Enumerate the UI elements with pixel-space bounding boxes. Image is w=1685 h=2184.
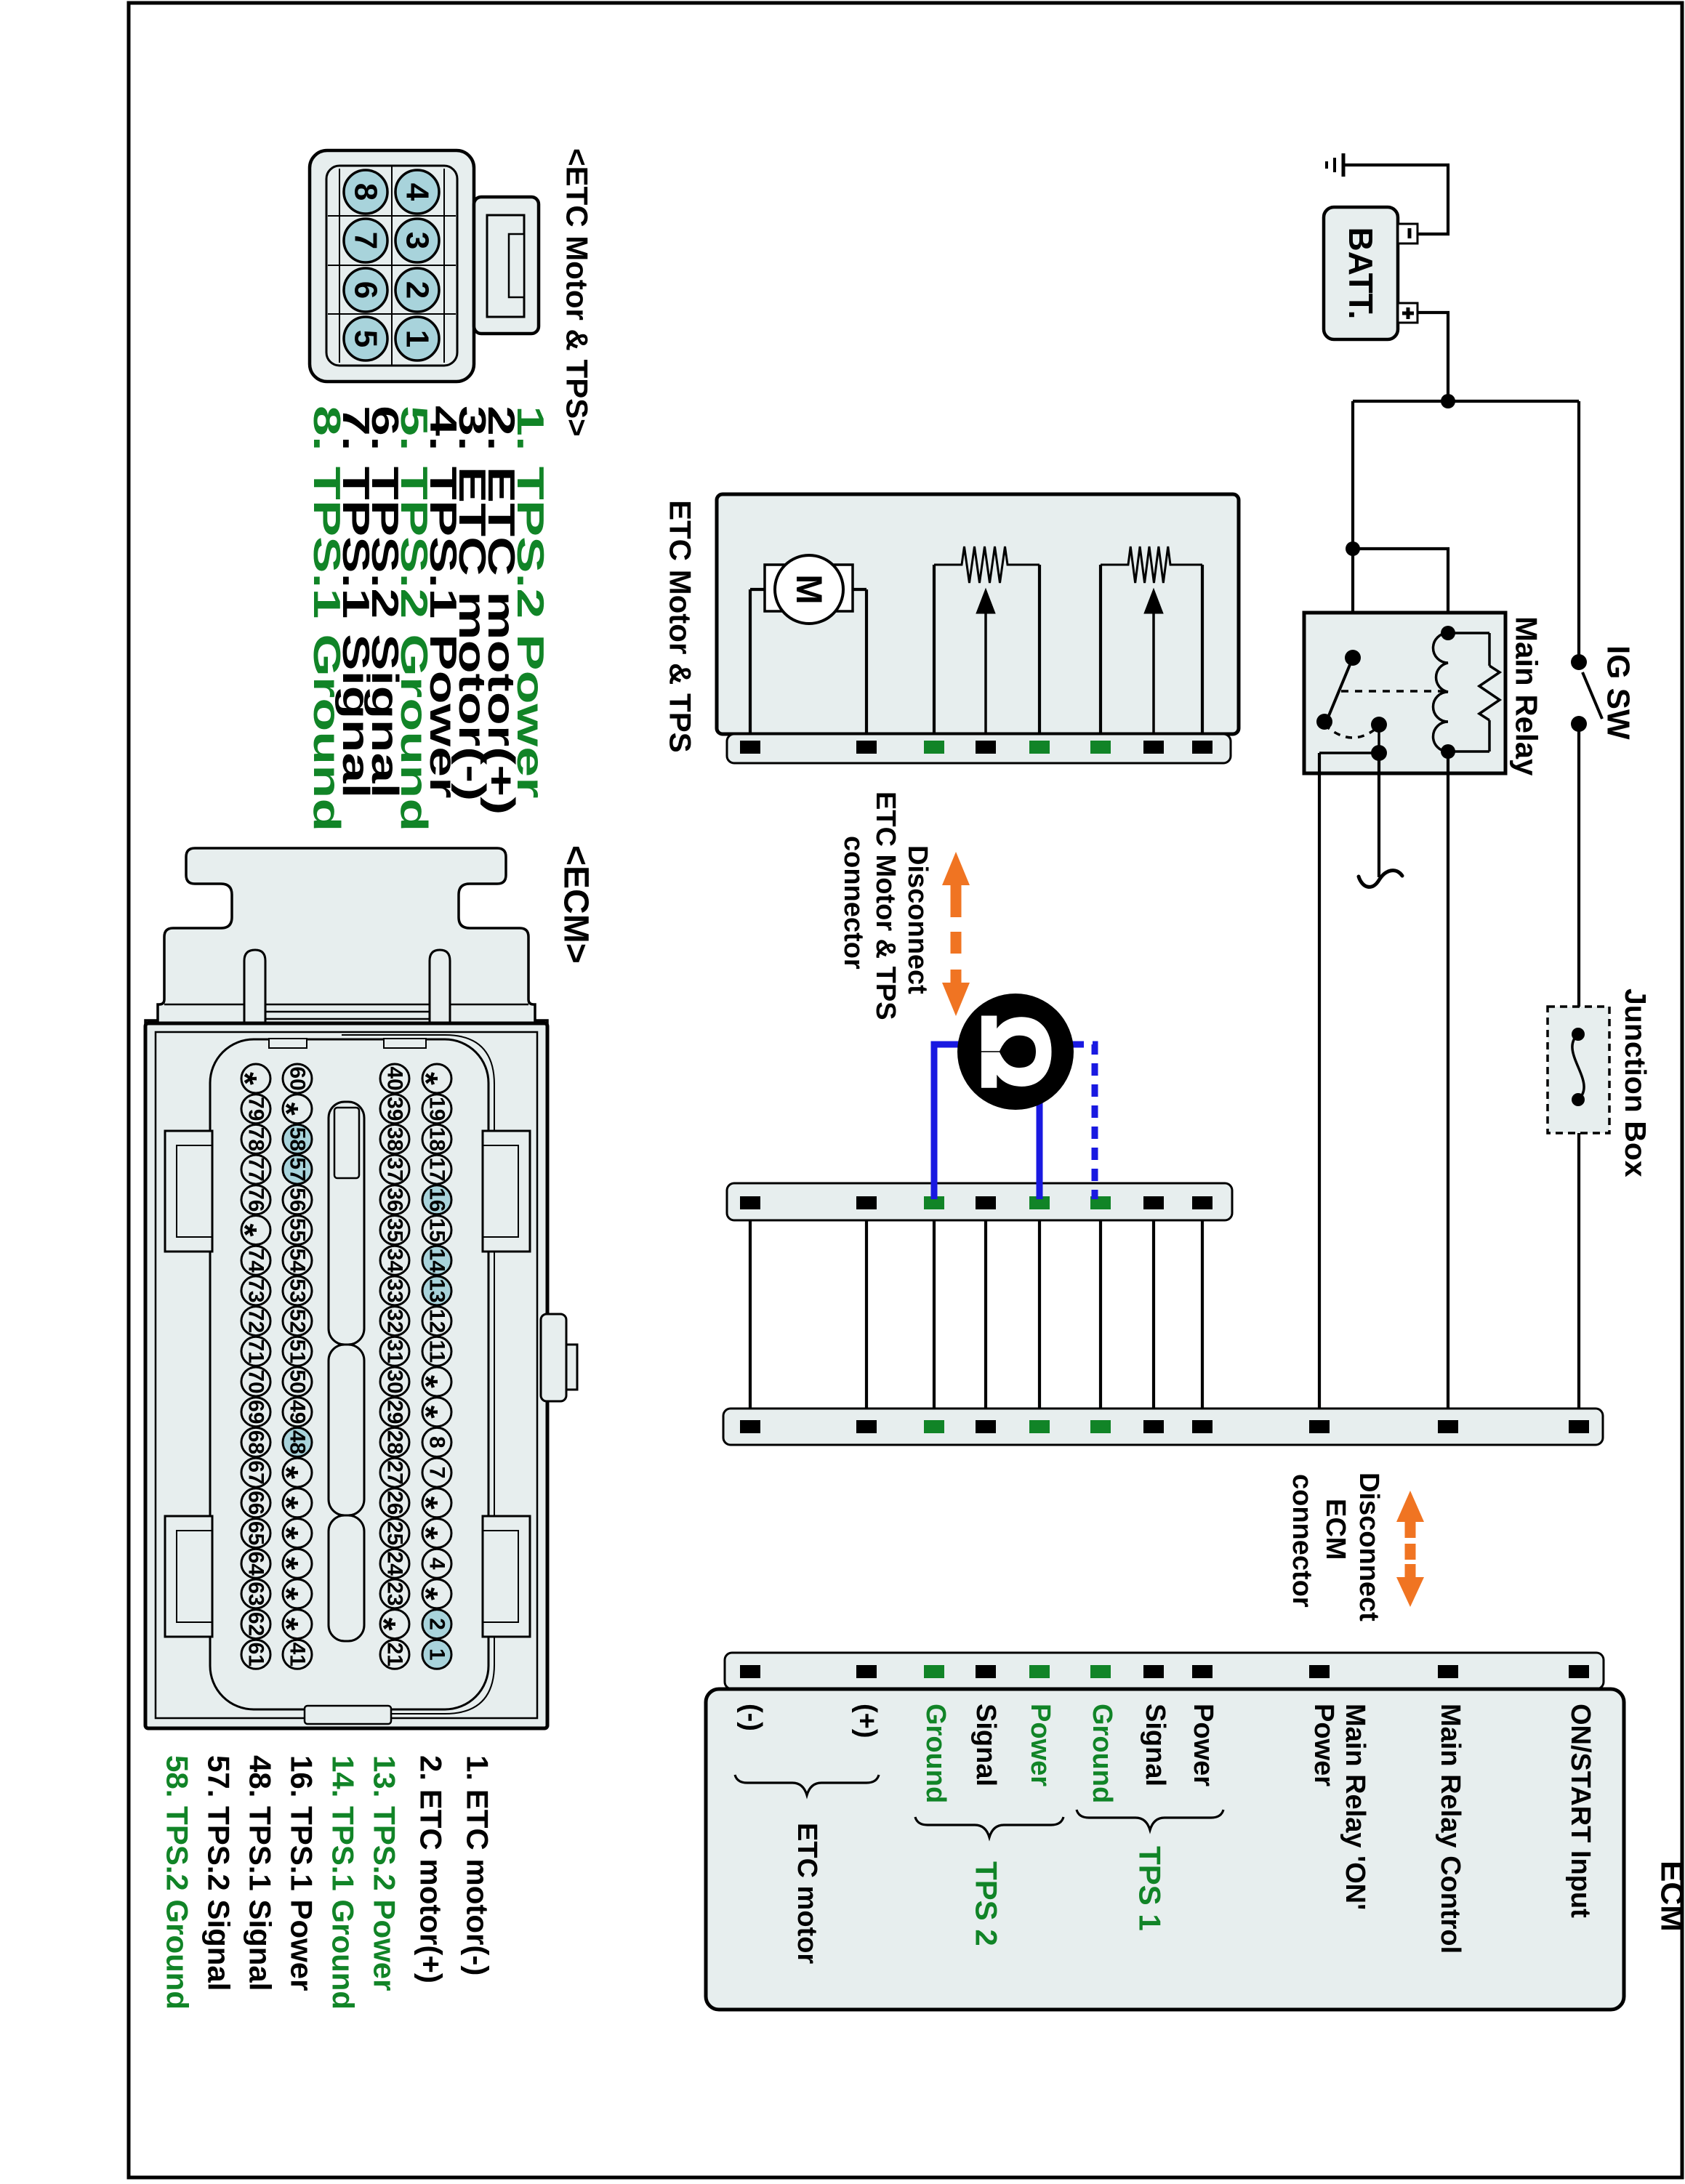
svg-text:2: 2	[400, 281, 435, 299]
svg-text:<ETC Motor & TPS>: <ETC Motor & TPS>	[560, 148, 595, 437]
svg-text:M: M	[789, 574, 829, 605]
svg-text:73: 73	[244, 1278, 268, 1302]
svg-text:26: 26	[383, 1491, 407, 1515]
svg-text:40: 40	[383, 1066, 407, 1090]
svg-text:ECM: ECM	[1654, 1861, 1685, 1932]
svg-text:70: 70	[244, 1369, 268, 1393]
svg-text:12: 12	[425, 1309, 449, 1333]
svg-text:Ground: Ground	[920, 1704, 951, 1803]
svg-text:8: 8	[425, 1436, 449, 1448]
svg-text:*: *	[226, 1224, 264, 1237]
svg-text:Main Relay Control: Main Relay Control	[1435, 1704, 1465, 1954]
svg-text:48: 48	[286, 1430, 310, 1454]
svg-text:*: *	[268, 1527, 305, 1540]
svg-text:14: 14	[425, 1249, 449, 1273]
svg-text:76: 76	[244, 1188, 268, 1212]
svg-text:*: *	[407, 1406, 445, 1419]
svg-text:*: *	[407, 1072, 445, 1085]
svg-text:67: 67	[244, 1460, 268, 1484]
svg-text:*: *	[268, 1618, 305, 1631]
svg-text:39: 39	[383, 1097, 407, 1121]
svg-text:8: 8	[348, 183, 384, 201]
svg-text:BATT.: BATT.	[1342, 227, 1380, 320]
svg-text:*: *	[407, 1527, 445, 1540]
svg-text:56: 56	[286, 1188, 310, 1212]
svg-text:19: 19	[425, 1097, 449, 1121]
svg-text:*: *	[226, 1072, 264, 1085]
svg-text:ON/START Input: ON/START Input	[1565, 1704, 1596, 1918]
svg-text:71: 71	[244, 1339, 268, 1363]
svg-text:30: 30	[383, 1369, 407, 1393]
svg-text:Disconnect: Disconnect	[902, 845, 933, 994]
svg-text:4: 4	[425, 1558, 449, 1570]
svg-text:37: 37	[383, 1157, 407, 1181]
svg-text:24: 24	[383, 1552, 407, 1576]
svg-text:Ω: Ω	[964, 1015, 1068, 1089]
svg-text:48. TPS.1 Signal: 48. TPS.1 Signal	[244, 1755, 278, 1991]
svg-text:65: 65	[244, 1521, 268, 1545]
svg-text:31: 31	[383, 1339, 407, 1363]
svg-text:Signal: Signal	[1140, 1704, 1170, 1786]
svg-text:50: 50	[286, 1369, 310, 1393]
svg-text:Power: Power	[1025, 1704, 1055, 1786]
svg-text:*: *	[407, 1375, 445, 1388]
svg-text:61: 61	[244, 1643, 268, 1667]
svg-text:54: 54	[286, 1249, 310, 1273]
svg-text:34: 34	[383, 1249, 407, 1273]
svg-text:29: 29	[383, 1400, 407, 1424]
svg-text:63: 63	[244, 1581, 268, 1605]
svg-text:36: 36	[383, 1188, 407, 1212]
svg-text:Disconnect: Disconnect	[1354, 1472, 1384, 1621]
svg-text:connector: connector	[1287, 1474, 1317, 1608]
svg-text:<ECM>: <ECM>	[557, 845, 595, 964]
svg-text:Main Relay: Main Relay	[1510, 616, 1544, 776]
svg-text:13. TPS.2 Power: 13. TPS.2 Power	[368, 1755, 402, 1991]
svg-text:41: 41	[286, 1643, 310, 1667]
svg-text:*: *	[268, 1587, 305, 1600]
svg-text:58. TPS.2 Ground: 58. TPS.2 Ground	[161, 1755, 195, 2010]
svg-text:ETC Motor & TPS: ETC Motor & TPS	[664, 500, 698, 753]
svg-text:72: 72	[244, 1309, 268, 1333]
svg-text:38: 38	[383, 1127, 407, 1151]
svg-text:15: 15	[425, 1218, 449, 1242]
svg-text:TPS 1: TPS 1	[1133, 1846, 1167, 1931]
svg-text:IG SW: IG SW	[1601, 645, 1636, 740]
svg-text:7: 7	[348, 232, 384, 249]
svg-text:25: 25	[383, 1521, 407, 1545]
svg-text:ETC Motor & TPS: ETC Motor & TPS	[870, 791, 901, 1020]
svg-text:Signal: Signal	[970, 1704, 1001, 1786]
svg-text:60: 60	[286, 1066, 310, 1090]
svg-text:21: 21	[383, 1643, 407, 1667]
svg-text:79: 79	[244, 1097, 268, 1121]
svg-text:8. TPS.1 Ground: 8. TPS.1 Ground	[306, 406, 349, 831]
svg-text:Ground: Ground	[1087, 1704, 1117, 1803]
svg-text:*: *	[268, 1496, 305, 1510]
svg-text:66: 66	[244, 1491, 268, 1515]
svg-text:33: 33	[383, 1278, 407, 1302]
svg-text:18: 18	[425, 1127, 449, 1151]
svg-text:16. TPS.1 Power: 16. TPS.1 Power	[285, 1755, 319, 1991]
svg-text:14. TPS.1 Ground: 14. TPS.1 Ground	[326, 1755, 361, 2010]
svg-text:(-): (-)	[736, 1704, 767, 1731]
svg-text:78: 78	[244, 1127, 268, 1151]
svg-text:74: 74	[244, 1249, 268, 1273]
svg-text:58: 58	[286, 1127, 310, 1151]
svg-text:11: 11	[425, 1339, 449, 1363]
svg-text:Junction Box: Junction Box	[1619, 988, 1652, 1177]
svg-text:16: 16	[425, 1188, 449, 1212]
svg-text:Main Relay 'ON': Main Relay 'ON'	[1340, 1704, 1370, 1910]
svg-text:13: 13	[425, 1278, 449, 1302]
svg-text:2: 2	[425, 1618, 449, 1630]
svg-text:68: 68	[244, 1430, 268, 1454]
svg-text:(+): (+)	[851, 1704, 882, 1738]
svg-text:6: 6	[348, 281, 384, 299]
svg-text:1: 1	[425, 1648, 449, 1661]
svg-text:57: 57	[286, 1157, 310, 1181]
svg-text:51: 51	[286, 1339, 310, 1363]
svg-text:*: *	[268, 1557, 305, 1570]
svg-text:ETC motor: ETC motor	[792, 1823, 822, 1964]
svg-text:*: *	[407, 1587, 445, 1600]
svg-text:ECM: ECM	[1320, 1499, 1351, 1560]
svg-text:32: 32	[383, 1309, 407, 1333]
svg-text:28: 28	[383, 1430, 407, 1454]
svg-text:5: 5	[348, 330, 384, 347]
svg-text:4: 4	[400, 183, 435, 201]
svg-text:53: 53	[286, 1278, 310, 1302]
svg-text:*: *	[365, 1618, 403, 1631]
svg-text:2. ETC motor(+): 2. ETC motor(+)	[414, 1755, 449, 1983]
svg-text:77: 77	[244, 1157, 268, 1181]
svg-text:Power: Power	[1308, 1704, 1339, 1786]
svg-text:1: 1	[400, 330, 435, 347]
svg-text:49: 49	[286, 1400, 310, 1424]
svg-text:62: 62	[244, 1612, 268, 1636]
svg-text:35: 35	[383, 1218, 407, 1242]
svg-text:17: 17	[425, 1157, 449, 1181]
svg-text:69: 69	[244, 1400, 268, 1424]
svg-text:*: *	[407, 1496, 445, 1510]
svg-text:*: *	[268, 1466, 305, 1479]
svg-text:57. TPS.2 Signal: 57. TPS.2 Signal	[202, 1755, 236, 1991]
svg-text:55: 55	[286, 1218, 310, 1242]
svg-text:connector: connector	[838, 836, 869, 970]
svg-text:Power: Power	[1188, 1704, 1218, 1786]
svg-text:27: 27	[383, 1460, 407, 1484]
svg-text:52: 52	[286, 1309, 310, 1333]
svg-text:3: 3	[400, 232, 435, 249]
svg-text:*: *	[268, 1103, 305, 1116]
svg-text:7: 7	[425, 1467, 449, 1479]
svg-text:TPS 2: TPS 2	[970, 1861, 1004, 1946]
svg-text:23: 23	[383, 1581, 407, 1605]
svg-text:64: 64	[244, 1552, 268, 1576]
svg-text:1. ETC motor(-): 1. ETC motor(-)	[461, 1755, 495, 1975]
